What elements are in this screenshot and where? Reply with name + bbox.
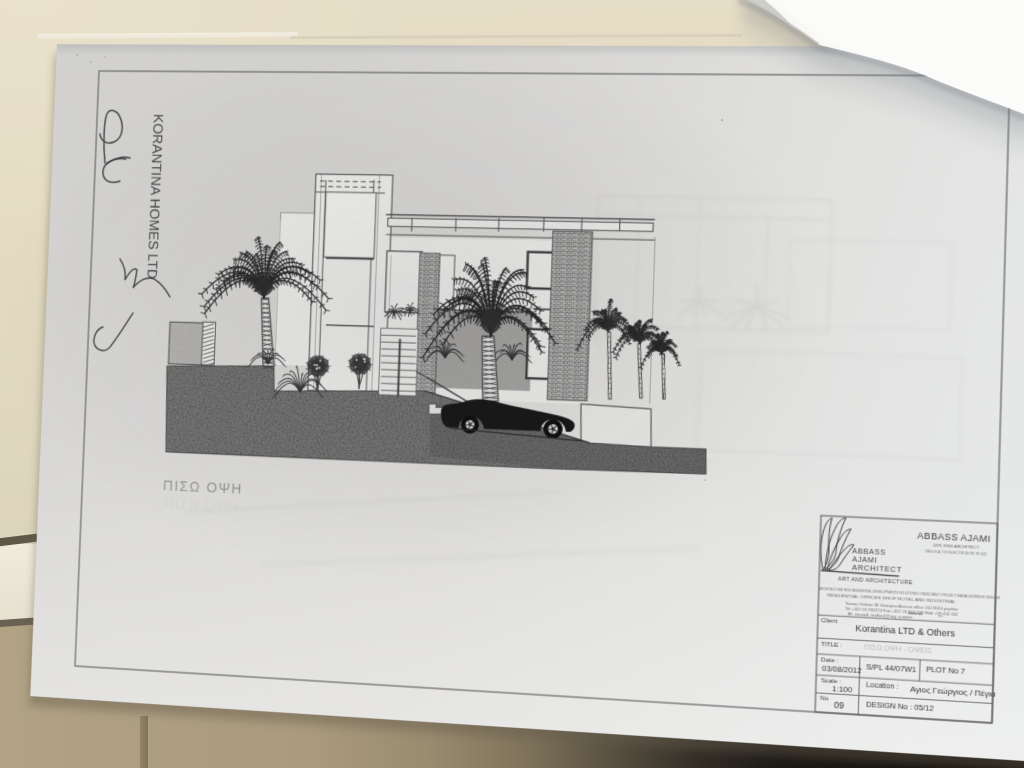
svg-text:1:100: 1:100 <box>832 684 853 694</box>
svg-text:www aa: www aa <box>907 611 923 616</box>
svg-text:09: 09 <box>834 700 844 711</box>
svg-text:TITLE :: TITLE : <box>821 642 843 650</box>
svg-text:AJAMI: AJAMI <box>852 555 877 564</box>
svg-text:Date :: Date : <box>821 657 839 665</box>
svg-text:Client: Client <box>821 618 838 626</box>
svg-text:eu: eu <box>938 613 943 618</box>
svg-text:No: No <box>820 696 829 703</box>
